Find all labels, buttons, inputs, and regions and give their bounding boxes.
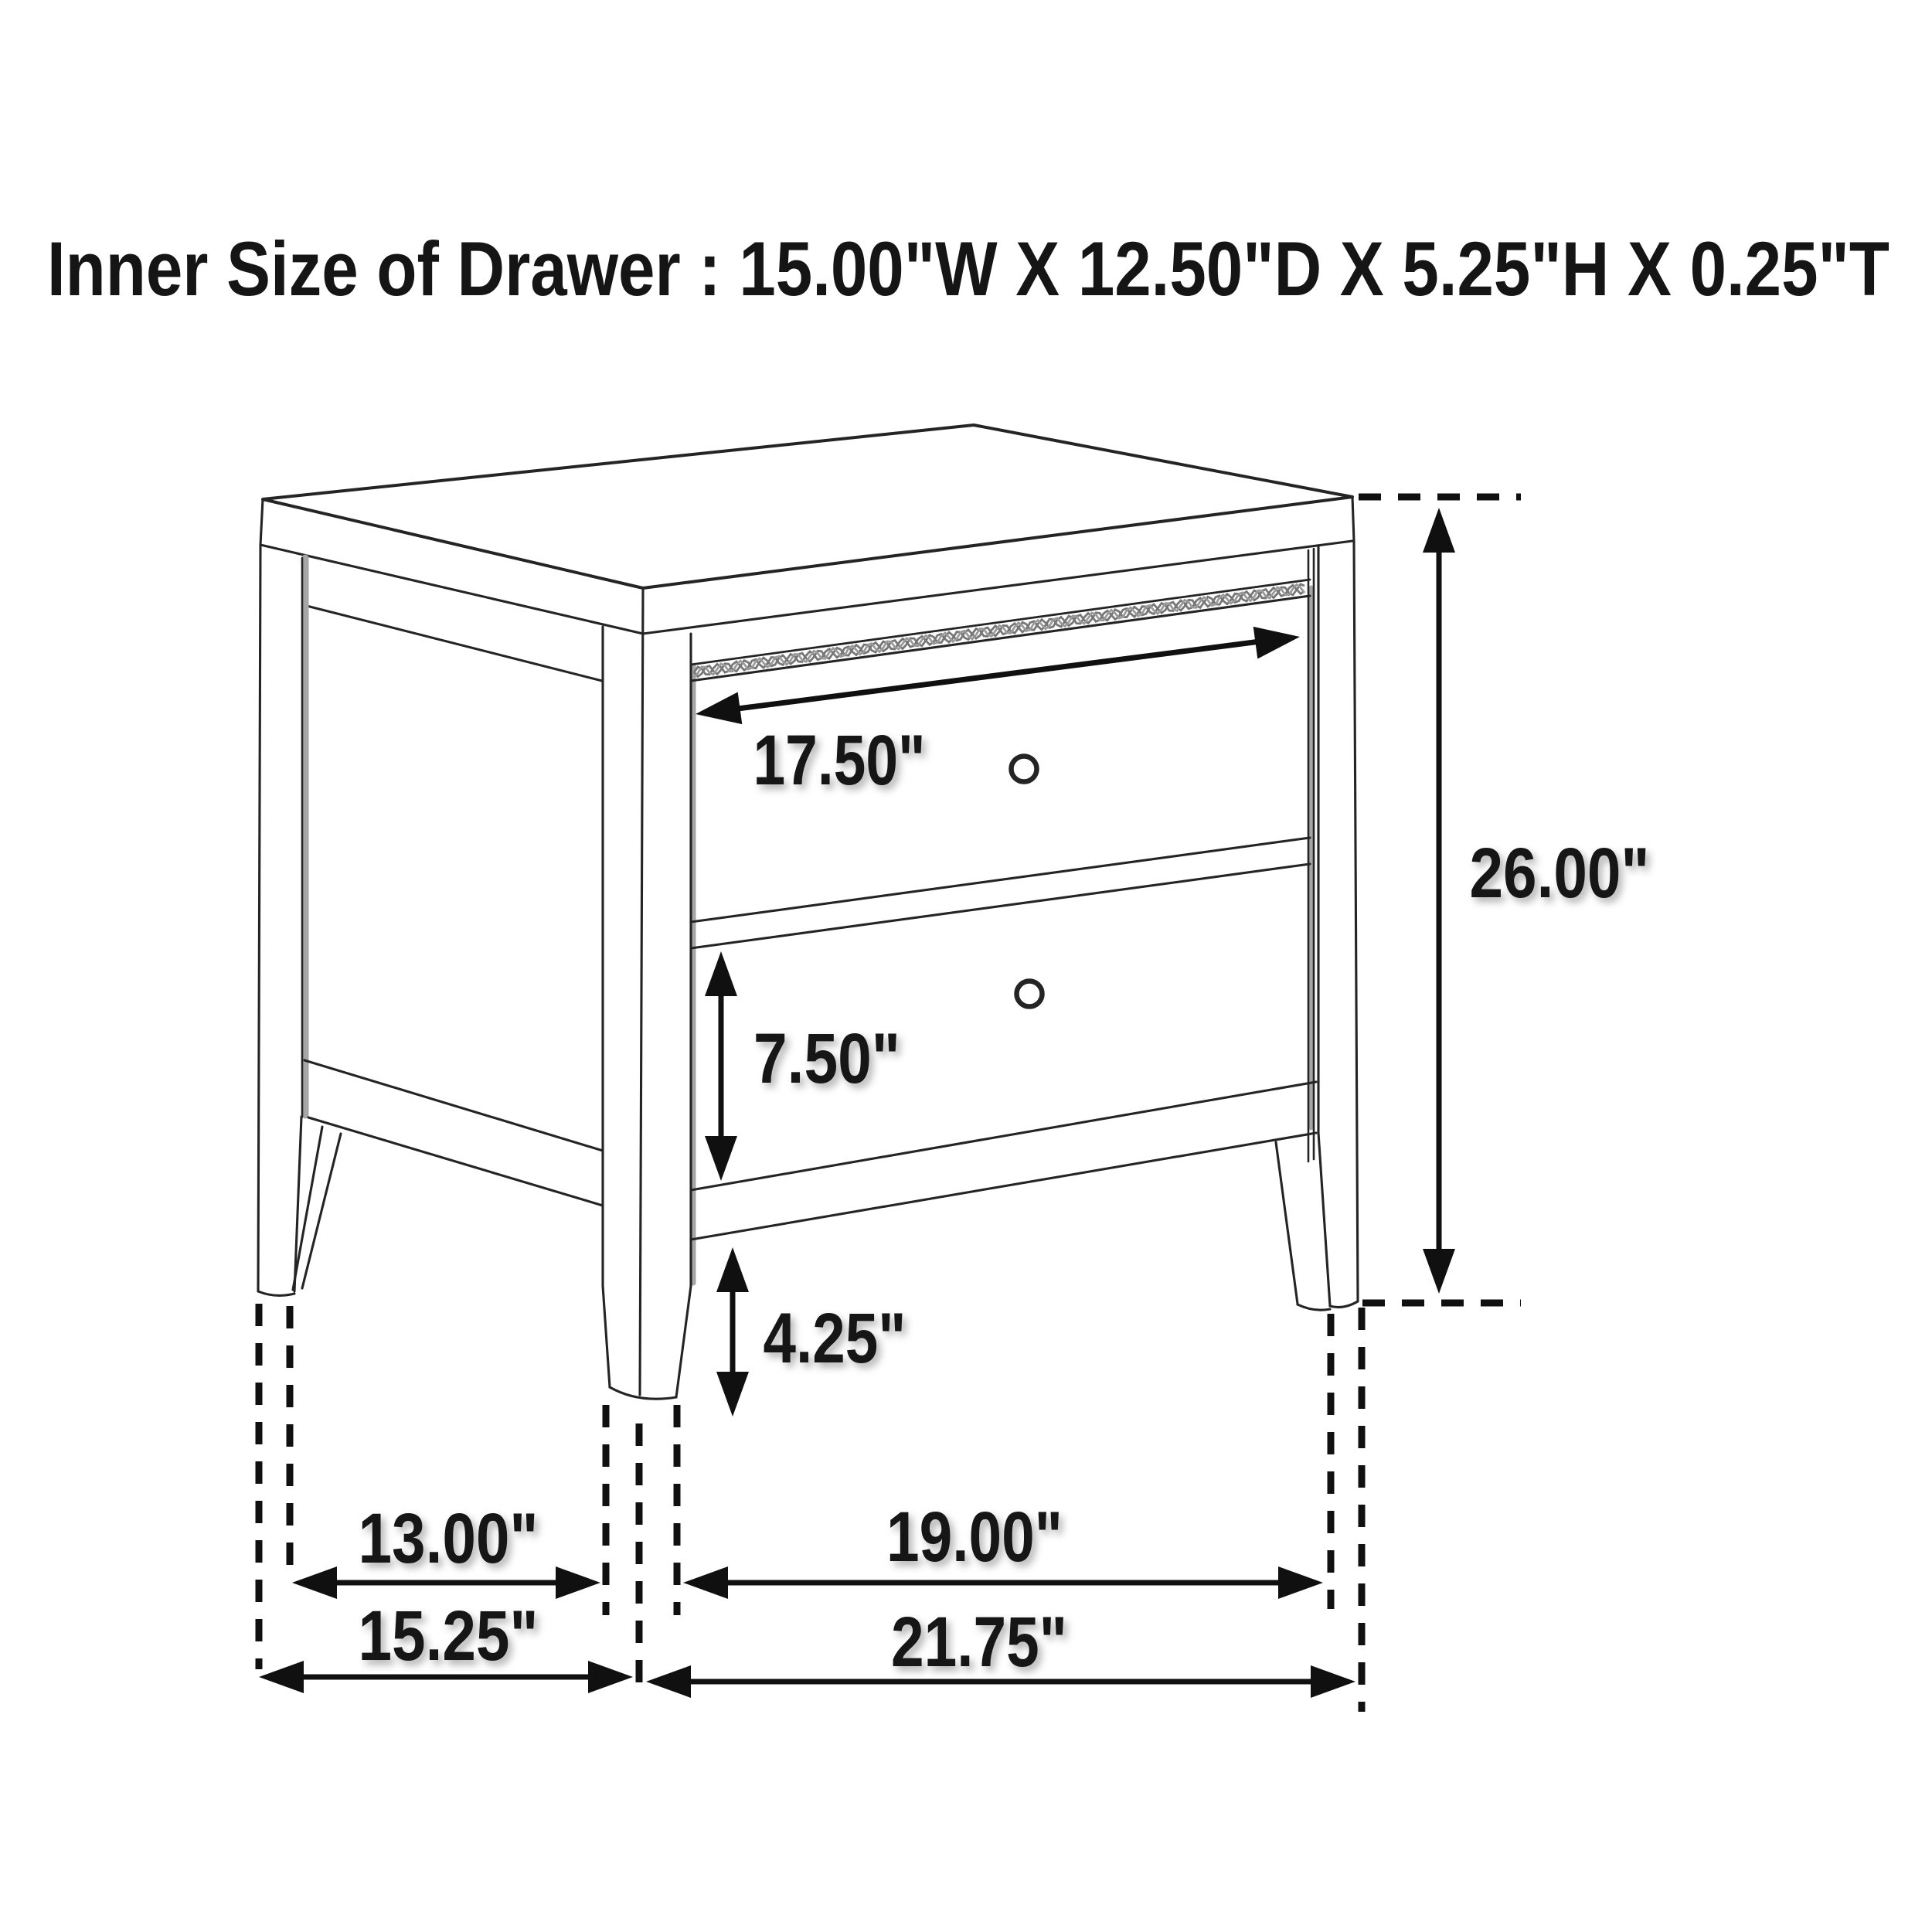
svg-text:4.25": 4.25" [764,1299,906,1378]
svg-text:Inner Size of Drawer : 15.00"W: Inner Size of Drawer : 15.00"W X 12.50"D… [47,226,1889,311]
svg-text:26.00": 26.00" [1470,834,1650,913]
svg-text:17.50": 17.50" [753,721,926,800]
svg-text:15.25": 15.25" [359,1597,539,1675]
svg-text:19.00": 19.00" [886,1498,1063,1577]
svg-text:21.75": 21.75" [891,1603,1067,1682]
svg-text:7.50": 7.50" [753,1019,900,1098]
svg-text:13.00": 13.00" [359,1499,539,1578]
